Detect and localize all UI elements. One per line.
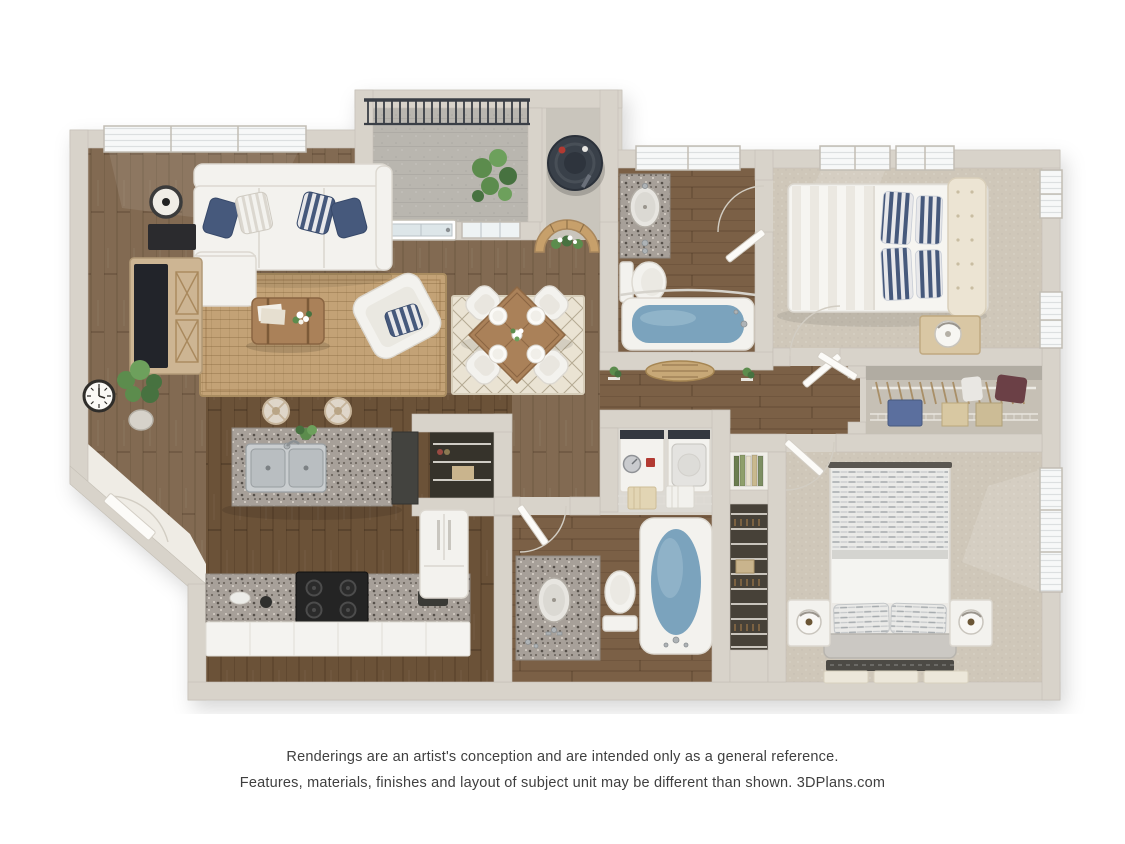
book-shelf bbox=[734, 455, 763, 486]
bed1-window-top-right bbox=[896, 146, 954, 170]
bed-1 bbox=[788, 178, 988, 316]
side-table bbox=[148, 224, 196, 250]
nightstand-2-right bbox=[950, 600, 992, 646]
tv-console bbox=[130, 258, 202, 374]
entry-sidelight-window bbox=[462, 222, 520, 238]
dryer bbox=[668, 430, 710, 492]
tv bbox=[134, 264, 168, 368]
kitchen-sink bbox=[246, 441, 326, 492]
bed2-rug bbox=[826, 660, 954, 671]
faucet-1 bbox=[642, 183, 647, 188]
bed1-window-top-left bbox=[820, 146, 890, 170]
table-lamp-2-right bbox=[959, 610, 983, 634]
door-handle bbox=[446, 228, 450, 232]
coffee-table bbox=[246, 298, 330, 353]
disclaimer: Renderings are an artist's conception an… bbox=[0, 744, 1125, 796]
wall-art bbox=[646, 361, 714, 381]
bed-2 bbox=[824, 462, 956, 658]
bathtub-2 bbox=[640, 518, 712, 654]
entry bbox=[386, 220, 520, 240]
pantry-floor bbox=[430, 432, 494, 498]
living-window bbox=[104, 126, 306, 152]
floor-mats bbox=[824, 671, 968, 683]
bathtub-1 bbox=[620, 290, 756, 350]
utility-closet bbox=[547, 136, 605, 196]
bed2-window bbox=[1040, 468, 1062, 592]
entry-glass-door bbox=[386, 220, 456, 240]
duvet-1 bbox=[790, 186, 876, 310]
vanity-1 bbox=[620, 174, 670, 258]
floor-plan-svg bbox=[0, 0, 1125, 714]
bath1-window bbox=[636, 146, 740, 170]
floor-plan bbox=[70, 90, 1062, 700]
wall-clock bbox=[84, 381, 114, 411]
magazines bbox=[257, 304, 285, 325]
vanity-2 bbox=[516, 556, 600, 660]
disclaimer-line-1: Renderings are an artist's conception an… bbox=[0, 744, 1125, 770]
faucet-2 bbox=[551, 627, 556, 632]
tub-water-1 bbox=[632, 305, 744, 343]
books bbox=[734, 455, 763, 486]
table-lamp-1 bbox=[935, 321, 961, 347]
duvet-2 bbox=[832, 470, 948, 550]
floor-lamp bbox=[151, 187, 181, 217]
closet-boxes bbox=[888, 400, 1002, 426]
nightstand-1 bbox=[920, 316, 980, 354]
bed1-window-right-lower bbox=[1040, 292, 1062, 348]
toilet-2 bbox=[603, 571, 637, 631]
toilet-1 bbox=[620, 262, 666, 302]
table-lamp-2-left bbox=[797, 610, 821, 634]
washer bbox=[620, 430, 664, 492]
headboard-2 bbox=[824, 634, 956, 658]
nightstand-2-left bbox=[788, 600, 830, 646]
headboard-1 bbox=[948, 178, 986, 316]
bar-stool bbox=[263, 398, 289, 424]
cabinet-front bbox=[206, 622, 470, 656]
kitchen-island bbox=[232, 425, 418, 506]
floor-plan-page: Renderings are an artist's conception an… bbox=[0, 0, 1125, 844]
fridge bbox=[420, 510, 468, 598]
water-heater bbox=[547, 136, 605, 196]
range-stove bbox=[296, 572, 368, 624]
hallway-pocket-floor bbox=[730, 410, 860, 434]
bar-stool bbox=[325, 398, 351, 424]
bed1-window-right-upper bbox=[1040, 170, 1062, 218]
disclaimer-line-2: Features, materials, finishes and layout… bbox=[0, 770, 1125, 796]
